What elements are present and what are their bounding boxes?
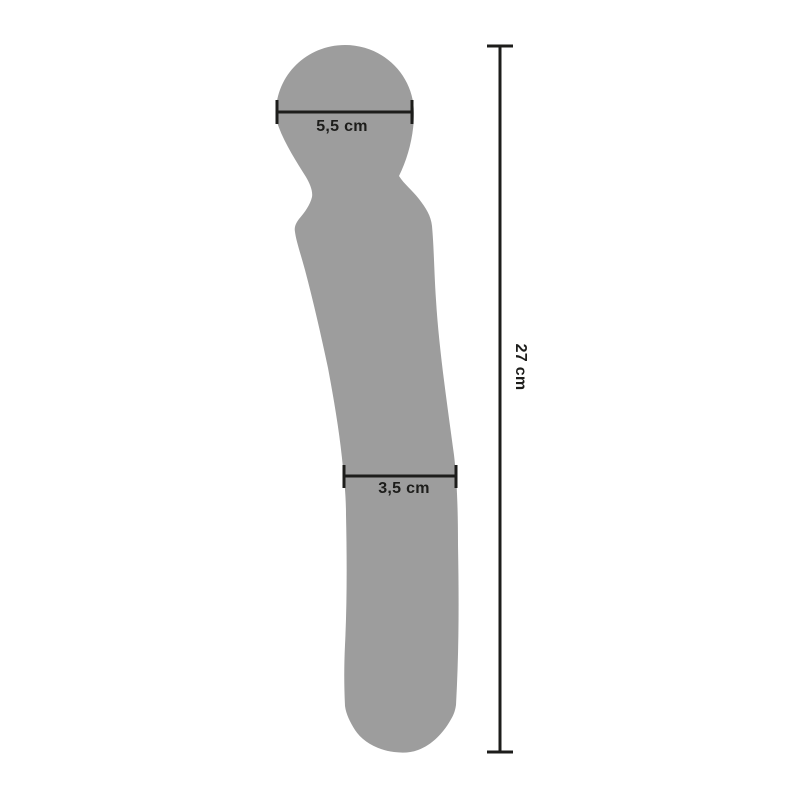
total-length-label: 27 cm (511, 344, 529, 391)
total-length-dimension (487, 46, 513, 752)
head-width-label: 5,5 cm (316, 118, 368, 136)
shaft-width-label: 3,5 cm (378, 480, 430, 498)
product-silhouette (276, 45, 459, 753)
dimension-diagram-canvas (0, 0, 800, 800)
product-dimension-diagram: 5,5 cm 3,5 cm 27 cm (0, 0, 800, 800)
